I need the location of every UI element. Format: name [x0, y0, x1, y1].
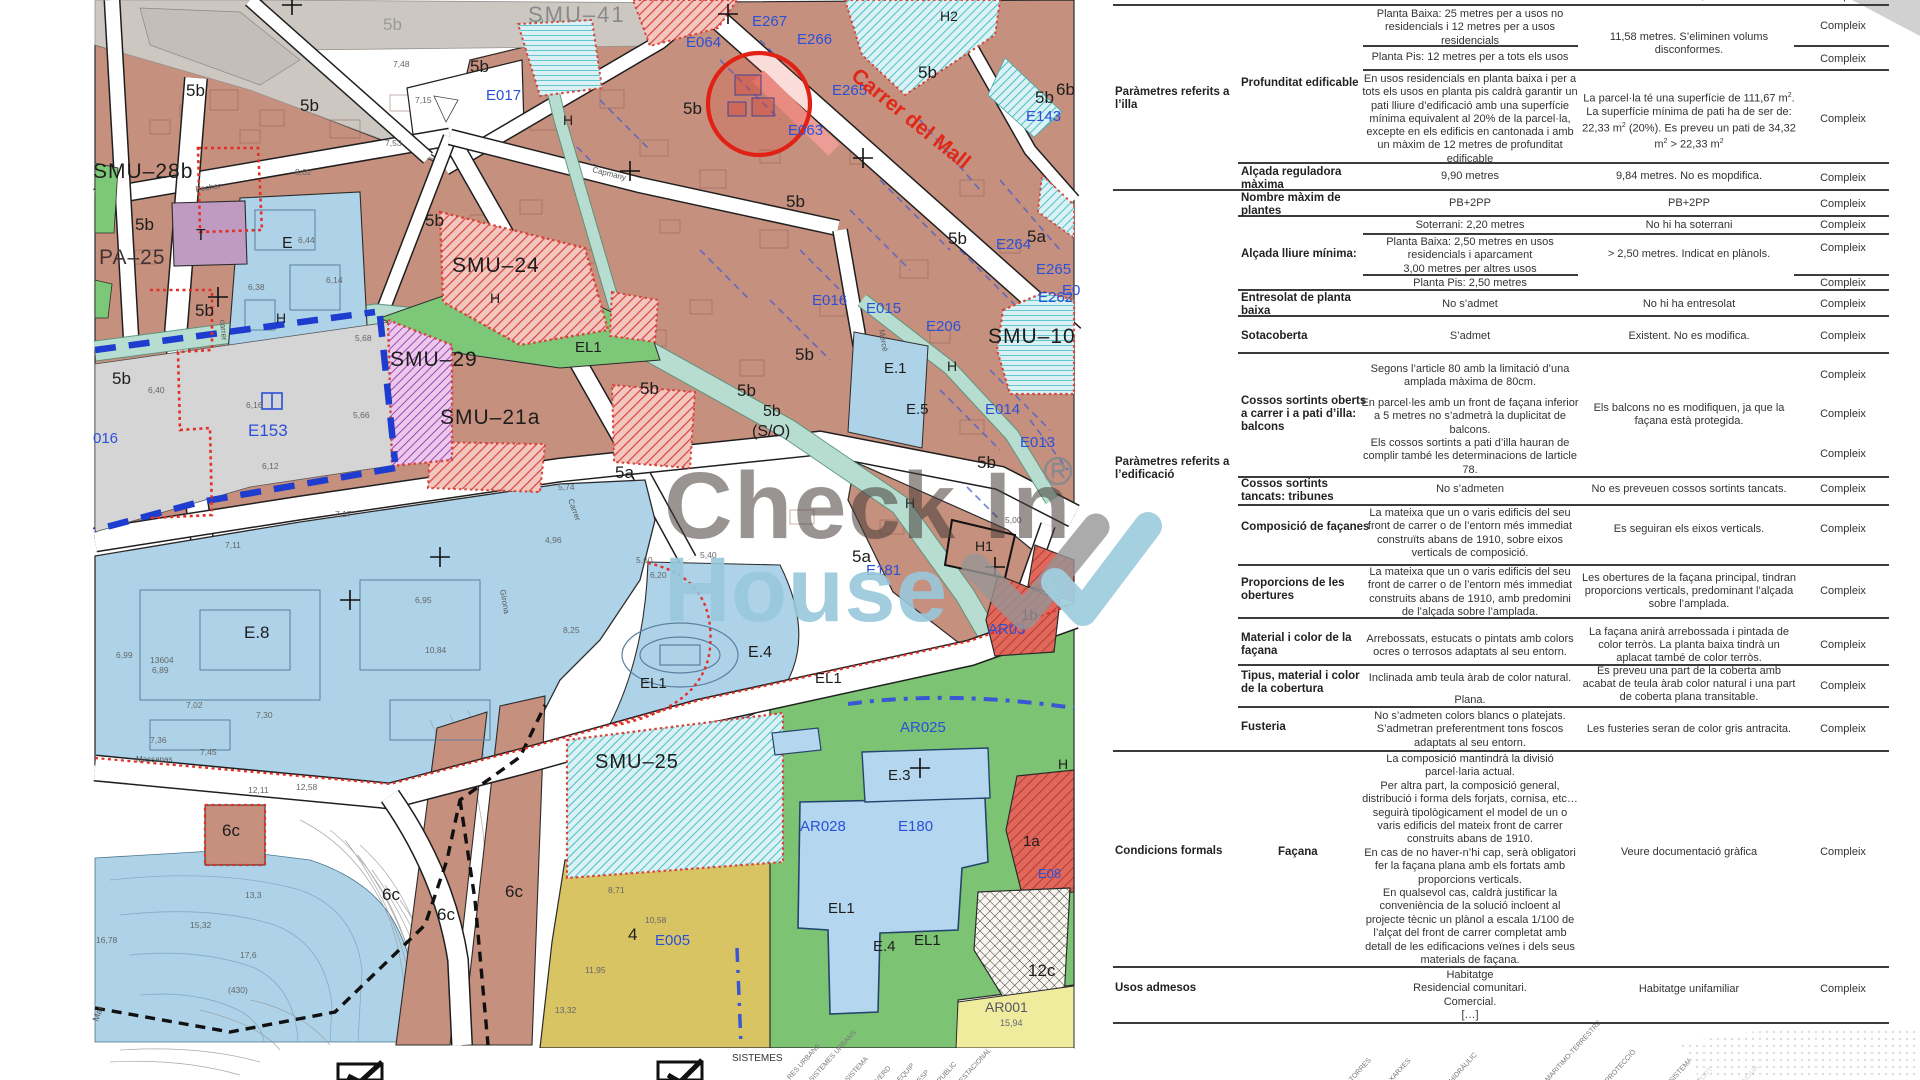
svg-text:SMU–28b: SMU–28b [93, 160, 193, 183]
svg-text:(430): (430) [228, 985, 248, 995]
svg-text:H: H [563, 112, 573, 128]
svg-text:SMU–24: SMU–24 [452, 254, 540, 277]
svg-text:XARXES: XARXES [1388, 1057, 1412, 1080]
svg-text:5b: 5b [918, 63, 937, 82]
svg-text:5b: 5b [1035, 88, 1054, 107]
svg-text:6c: 6c [222, 821, 240, 840]
svg-text:SMU–25: SMU–25 [595, 751, 679, 773]
svg-text:5,74: 5,74 [558, 482, 575, 492]
svg-text:SMU–29: SMU–29 [390, 348, 478, 371]
svg-text:12,11: 12,11 [248, 785, 269, 795]
svg-text:5b: 5b [683, 99, 702, 118]
svg-text:7,15: 7,15 [415, 95, 432, 105]
svg-text:10,58: 10,58 [645, 915, 667, 925]
svg-text:7,45: 7,45 [200, 747, 217, 757]
svg-text:H: H [490, 290, 500, 306]
svg-text:E063: E063 [788, 122, 823, 139]
svg-text:8,25: 8,25 [563, 625, 580, 635]
svg-text:4,96: 4,96 [545, 535, 562, 545]
svg-text:E180: E180 [898, 818, 933, 835]
svg-text:5b: 5b [186, 81, 205, 100]
svg-text:AR025: AR025 [900, 719, 946, 736]
svg-text:EL1: EL1 [640, 675, 667, 692]
svg-text:5b: 5b [425, 211, 444, 230]
svg-text:16,78: 16,78 [96, 935, 118, 945]
svg-text:HIDRÀULIC: HIDRÀULIC [1447, 1050, 1479, 1080]
svg-text:MARITIMO-TERRESTRE: MARITIMO-TERRESTRE [1544, 1019, 1603, 1080]
svg-text:5b: 5b [135, 215, 154, 234]
svg-text:6,38: 6,38 [248, 282, 265, 292]
svg-text:5a: 5a [615, 463, 634, 482]
svg-text:5b: 5b [737, 381, 756, 400]
svg-text:17,6: 17,6 [240, 950, 257, 960]
svg-text:10,84: 10,84 [425, 645, 447, 655]
svg-text:E015: E015 [866, 300, 901, 317]
svg-text:6b: 6b [1056, 80, 1075, 99]
svg-text:E0: E0 [1062, 282, 1080, 299]
svg-text:6c: 6c [437, 905, 455, 924]
svg-text:AR028: AR028 [800, 818, 846, 835]
svg-text:1a: 1a [1023, 833, 1040, 850]
svg-text:SMU–10: SMU–10 [988, 325, 1076, 348]
svg-text:E266: E266 [797, 31, 832, 48]
svg-text:7,30: 7,30 [256, 710, 273, 720]
svg-text:E.4: E.4 [873, 938, 896, 955]
svg-text:Massanas: Massanas [136, 755, 172, 764]
svg-text:E265: E265 [1036, 261, 1071, 278]
svg-text:E.1: E.1 [884, 360, 907, 377]
svg-text:T: T [196, 227, 206, 244]
svg-text:7,53: 7,53 [385, 138, 402, 148]
svg-text:5b: 5b [795, 345, 814, 364]
svg-text:6,95: 6,95 [415, 595, 432, 605]
svg-text:5b: 5b [300, 96, 319, 115]
svg-text:016: 016 [93, 430, 118, 447]
svg-text:H: H [276, 310, 286, 326]
svg-text:5,60: 5,60 [636, 555, 653, 565]
svg-text:5b: 5b [948, 229, 967, 248]
svg-text:6,14: 6,14 [326, 275, 343, 285]
svg-text:6c: 6c [382, 885, 400, 904]
svg-text:PROTECCIÓ: PROTECCIÓ [1603, 1047, 1638, 1080]
svg-text:E267: E267 [752, 13, 787, 30]
svg-text:H: H [1058, 756, 1068, 772]
svg-text:5b: 5b [112, 369, 131, 388]
svg-text:E264: E264 [996, 236, 1031, 253]
svg-text:7,48: 7,48 [393, 59, 410, 69]
svg-text:15,94: 15,94 [1000, 1018, 1023, 1028]
svg-text:11,95: 11,95 [585, 965, 606, 975]
svg-text:13,32: 13,32 [555, 1005, 577, 1015]
svg-text:6,44: 6,44 [298, 235, 315, 245]
svg-text:EL1: EL1 [914, 932, 941, 949]
svg-text:5b: 5b [786, 192, 805, 211]
svg-text:E: E [282, 235, 293, 252]
svg-text:12c: 12c [1028, 961, 1056, 980]
svg-text:6,12: 6,12 [262, 461, 279, 471]
svg-text:EL1: EL1 [815, 670, 842, 687]
svg-text:carrer: carrer [218, 319, 229, 341]
svg-text:E.5: E.5 [906, 401, 929, 418]
svg-text:E064: E064 [686, 34, 721, 51]
svg-text:6,89: 6,89 [152, 665, 169, 675]
svg-text:SMU–21a: SMU–21a [440, 406, 540, 429]
svg-text:E014: E014 [985, 401, 1020, 418]
svg-text:E143: E143 [1026, 108, 1061, 125]
svg-text:8,71: 8,71 [608, 885, 625, 895]
svg-text:E016: E016 [812, 292, 847, 309]
svg-text:6,16: 6,16 [246, 400, 263, 410]
svg-text:5b: 5b [383, 15, 402, 34]
svg-text:6,99: 6,99 [116, 650, 133, 660]
svg-text:E.3: E.3 [888, 767, 911, 784]
svg-text:15,32: 15,32 [190, 920, 212, 930]
svg-text:E.4: E.4 [748, 644, 772, 661]
svg-text:PA–25: PA–25 [99, 246, 166, 269]
svg-text:5b: 5b [640, 379, 659, 398]
svg-text:E005: E005 [655, 932, 690, 949]
svg-text:E.8: E.8 [244, 623, 270, 642]
svg-text:E013: E013 [1020, 434, 1055, 451]
svg-text:7,17: 7,17 [335, 509, 352, 519]
svg-text:4: 4 [628, 925, 637, 944]
svg-text:(S/O): (S/O) [752, 423, 790, 440]
svg-text:E08: E08 [1038, 866, 1061, 881]
svg-text:7,36: 7,36 [150, 735, 167, 745]
svg-text:E017: E017 [486, 87, 521, 104]
svg-text:6c: 6c [505, 882, 523, 901]
svg-text:EL1: EL1 [828, 900, 855, 917]
svg-text:7,02: 7,02 [186, 700, 203, 710]
svg-text:SMU–41: SMU–41 [528, 2, 626, 27]
svg-text:TORRES: TORRES [1348, 1057, 1373, 1080]
svg-text:5b: 5b [195, 301, 214, 320]
svg-text:6,40: 6,40 [148, 385, 165, 395]
svg-text:8,02: 8,02 [295, 167, 312, 177]
svg-text:EL1: EL1 [575, 339, 602, 356]
svg-text:5b: 5b [763, 403, 781, 420]
svg-text:13,3: 13,3 [245, 890, 262, 900]
svg-text:5b: 5b [470, 57, 489, 76]
svg-text:13604: 13604 [150, 655, 174, 665]
svg-text:SISTEMES: SISTEMES [732, 1053, 783, 1064]
svg-text:5,66: 5,66 [353, 410, 370, 420]
svg-text:7,11: 7,11 [225, 540, 241, 550]
svg-text:H2: H2 [940, 8, 958, 24]
svg-text:AR001: AR001 [985, 999, 1028, 1015]
svg-text:E153: E153 [248, 421, 288, 440]
svg-text:12,58: 12,58 [296, 782, 318, 792]
svg-text:5,68: 5,68 [355, 333, 372, 343]
svg-text:E206: E206 [926, 318, 961, 335]
svg-text:H: H [947, 358, 957, 374]
